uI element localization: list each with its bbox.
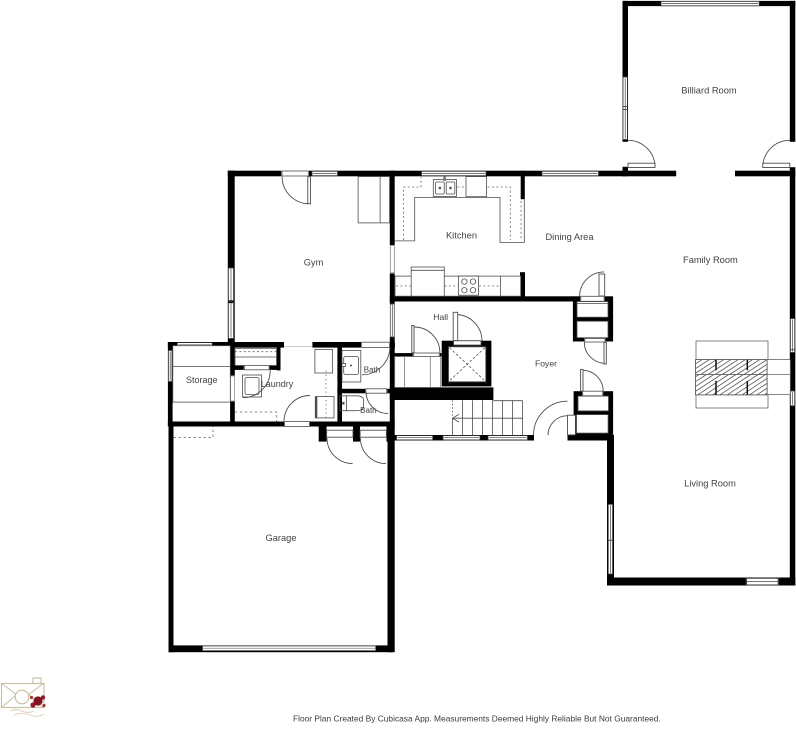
svg-text:Living Room: Living Room	[684, 479, 736, 489]
svg-text:Hall: Hall	[433, 312, 448, 322]
svg-text:Laundry: Laundry	[261, 379, 294, 389]
svg-text:Bath: Bath	[364, 365, 380, 374]
svg-text:Garage: Garage	[265, 533, 296, 543]
svg-text:Dining Area: Dining Area	[545, 232, 594, 242]
svg-text:Family Room: Family Room	[683, 255, 738, 265]
svg-text:Floor Plan Created By Cubicasa: Floor Plan Created By Cubicasa App. Meas…	[293, 714, 661, 724]
svg-text:Storage: Storage	[186, 375, 218, 385]
svg-text:Billiard Room: Billiard Room	[681, 86, 737, 96]
svg-text:Kitchen: Kitchen	[446, 230, 477, 240]
svg-text:Bath: Bath	[360, 406, 376, 415]
svg-text:Gym: Gym	[304, 257, 324, 267]
svg-text:Foyer: Foyer	[535, 359, 557, 369]
